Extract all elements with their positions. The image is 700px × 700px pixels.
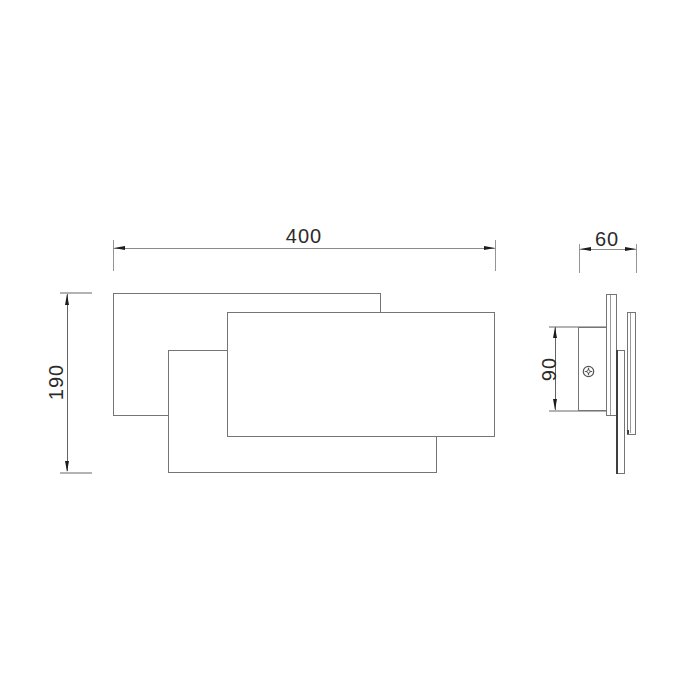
- dim-90-arrow-down-icon: [553, 399, 557, 410]
- dim-190-arrow-up-icon: [65, 294, 69, 305]
- dim-400-line: [113, 248, 495, 249]
- dim-60-label: 60: [577, 229, 637, 249]
- dim-400-arrow-left-icon: [114, 246, 125, 250]
- dim-90-arrow-up-icon: [553, 327, 557, 338]
- side-panel-front: [627, 312, 636, 435]
- side-panel-middle-dark-edge: [616, 350, 618, 474]
- technical-drawing-canvas: 400 190 60: [0, 0, 700, 700]
- dim-190-label: 190: [46, 347, 66, 417]
- screw-head-icon: [581, 364, 596, 379]
- front-panel-top: [227, 312, 495, 437]
- dim-400-arrow-right-icon: [484, 246, 495, 250]
- dim-400-label: 400: [269, 226, 339, 246]
- dim-400-extension-right: [495, 240, 496, 271]
- side-panel-back-edge-line: [610, 295, 611, 415]
- side-panel-front-corner-tick: [627, 430, 630, 434]
- dim-190-arrow-down-icon: [65, 461, 69, 472]
- dim-190-extension-bottom: [60, 472, 92, 474]
- dim-90-label: 90: [539, 344, 559, 394]
- side-panel-front-edge-line: [630, 313, 631, 433]
